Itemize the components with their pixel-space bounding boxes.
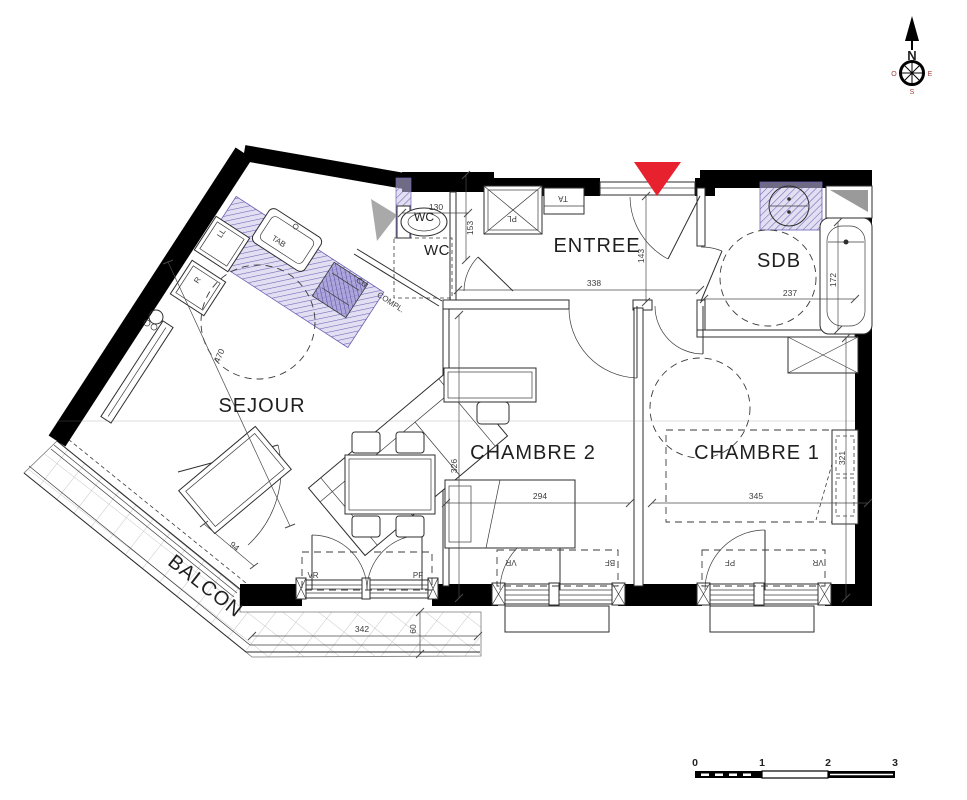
dim-345: 345 [749,491,763,501]
scale-3: 3 [892,757,898,769]
chambre1-sill [710,606,814,632]
compl-label: COMPL. [375,290,406,314]
turning-circle-sdb [720,230,816,326]
kitchen-corner-shade [371,199,397,241]
room-label-chambre2: CHAMBRE 2 [470,442,596,464]
scale-bar: 0 1 2 3 [692,757,898,778]
dim-153: 153 [465,221,475,235]
compass-west-label: O [891,71,897,78]
dim-342: 342 [355,624,369,634]
compass-icon: N O E S [891,16,932,96]
sdb-closet [788,337,858,373]
dim-338: 338 [587,278,601,288]
dining-chair [352,432,380,453]
chambre1-window [697,530,831,632]
scale-0: 0 [692,757,698,769]
chambre2-bf-label: BF [605,558,615,567]
basin-drain [787,197,791,201]
room-label-wc-small: WC [414,210,434,224]
dim-470: 470 [212,347,227,364]
room-label-wc: WC [424,242,450,259]
dim-326: 326 [449,459,459,473]
scale-1: 1 [759,757,765,769]
dim-294: 294 [533,491,547,501]
sejour-vr-label: VR [307,571,318,580]
wc-door [464,257,513,291]
chambre1-pf-label: PF [725,558,735,567]
room-label-sejour: SEJOUR [218,395,305,417]
chambre2-sill [505,606,609,632]
floor-plan-drawing: TA PL LL R TAB CU COMPL. [0,0,967,800]
chambre1-vr-label: VR [812,558,823,567]
room-label-sdb: SDB [757,250,801,272]
bed-chambre2 [445,480,575,548]
chambre1-door [655,306,703,354]
dim-94: 94 [228,539,242,553]
scale-2: 2 [825,757,831,769]
dim-172: 172 [828,273,838,287]
bathtub-faucet-icon [844,240,849,245]
chambre2-vr-label: VR [505,558,516,567]
dining-chair [396,432,424,453]
floor-plan-page: TA PL LL R TAB CU COMPL. [0,0,967,800]
room-label-entree: ENTREE [553,235,640,257]
dim-321: 321 [837,451,847,465]
room-label-chambre1: CHAMBRE 1 [694,442,820,464]
sejour-pf-label: PF [413,571,423,580]
ta-label: TA [558,194,568,203]
entry-closet [484,186,542,234]
desk [444,368,536,402]
dim-237: 237 [783,288,797,298]
sdb-door [701,247,722,301]
pl-label: PL [507,214,517,223]
coffee-table [179,426,292,533]
dining-table [345,455,435,514]
chambre2-door [569,306,637,378]
dining-chair [396,516,424,537]
compass-south-label: S [910,89,915,96]
compass-east-label: E [928,71,933,78]
dim-60: 60 [408,624,418,634]
entrance-threshold [600,182,695,195]
dining-chair [352,516,380,537]
